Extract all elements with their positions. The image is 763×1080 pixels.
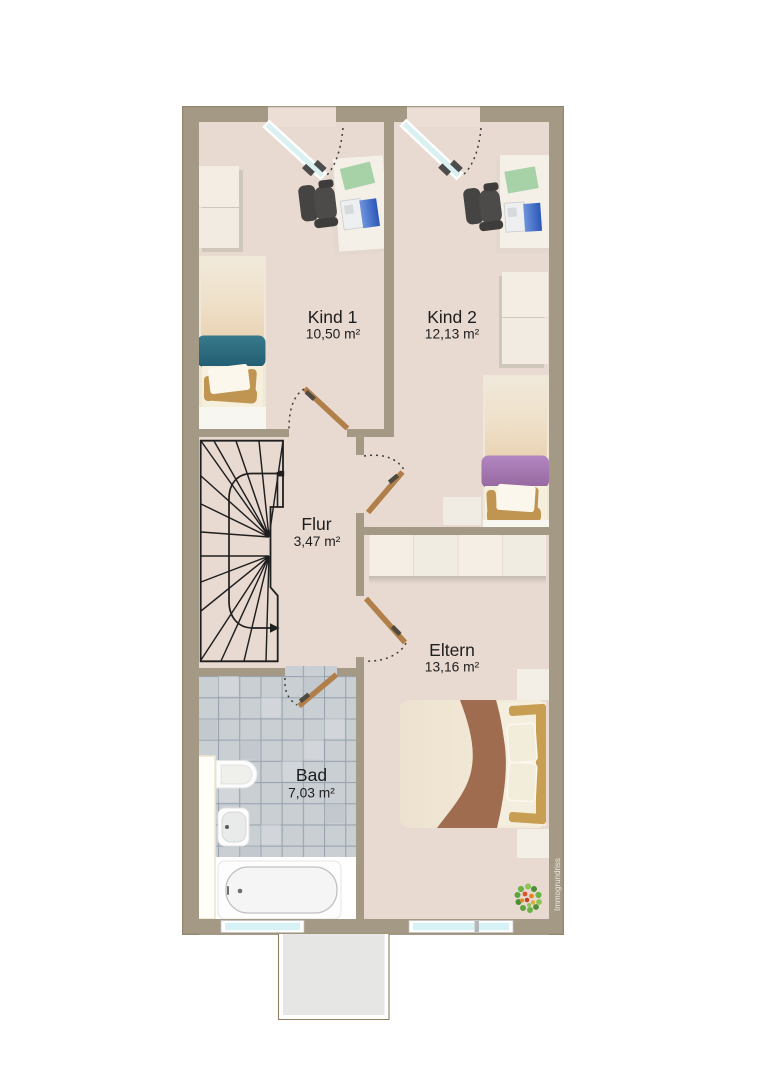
svg-text:Eltern: Eltern	[429, 640, 475, 660]
svg-text:10,50 m²: 10,50 m²	[306, 327, 361, 342]
svg-text:13,16 m²: 13,16 m²	[425, 660, 480, 675]
svg-text:Bad: Bad	[296, 765, 327, 785]
svg-text:Flur: Flur	[301, 514, 331, 534]
svg-text:7,03 m²: 7,03 m²	[288, 786, 335, 801]
svg-text:Kind 2: Kind 2	[427, 307, 477, 327]
svg-text:Kind 1: Kind 1	[308, 307, 358, 327]
svg-text:3,47 m²: 3,47 m²	[294, 534, 341, 549]
svg-text:Immogrundriss: Immogrundriss	[553, 858, 562, 911]
svg-text:12,13 m²: 12,13 m²	[425, 327, 480, 342]
